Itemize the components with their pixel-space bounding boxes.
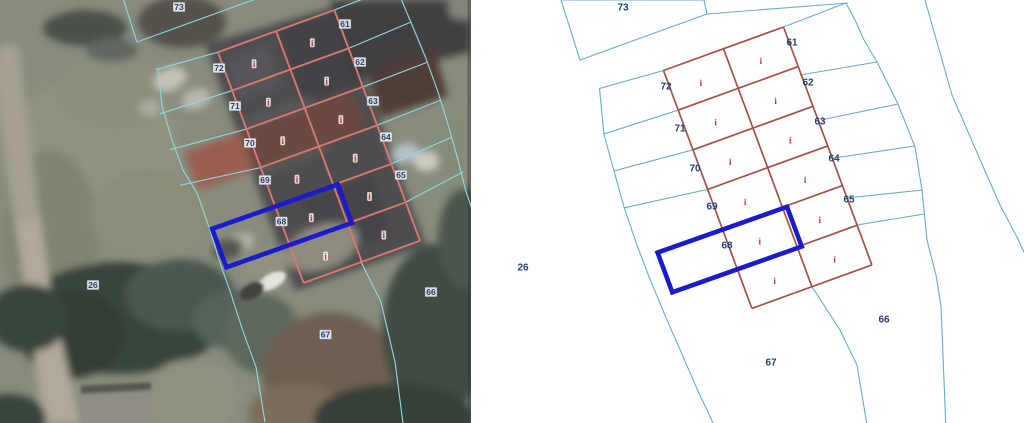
svg-text:65: 65 [396,170,406,180]
svg-text:62: 62 [802,78,814,89]
svg-text:61: 61 [340,19,350,29]
svg-text:26: 26 [88,280,98,290]
svg-text:67: 67 [765,358,777,369]
svg-text:72: 72 [660,82,672,93]
svg-text:63: 63 [814,117,826,128]
svg-text:64: 64 [828,154,840,165]
svg-text:69: 69 [260,175,270,185]
svg-text:64: 64 [381,132,391,142]
svg-text:63: 63 [368,96,378,106]
svg-text:73: 73 [174,2,184,12]
svg-text:71: 71 [230,101,240,111]
svg-text:26: 26 [517,263,529,274]
svg-text:66: 66 [426,287,436,297]
svg-text:70: 70 [245,138,255,148]
svg-text:65: 65 [843,195,855,206]
svg-text:72: 72 [214,63,224,73]
svg-text:70: 70 [689,164,701,175]
svg-text:71: 71 [674,124,686,135]
svg-text:69: 69 [706,202,718,213]
svg-text:68: 68 [277,217,287,227]
svg-text:66: 66 [878,315,890,326]
svg-text:73: 73 [617,3,629,14]
svg-text:67: 67 [321,330,331,340]
svg-text:61: 61 [786,38,798,49]
svg-text:68: 68 [721,241,733,252]
svg-text:62: 62 [355,57,365,67]
